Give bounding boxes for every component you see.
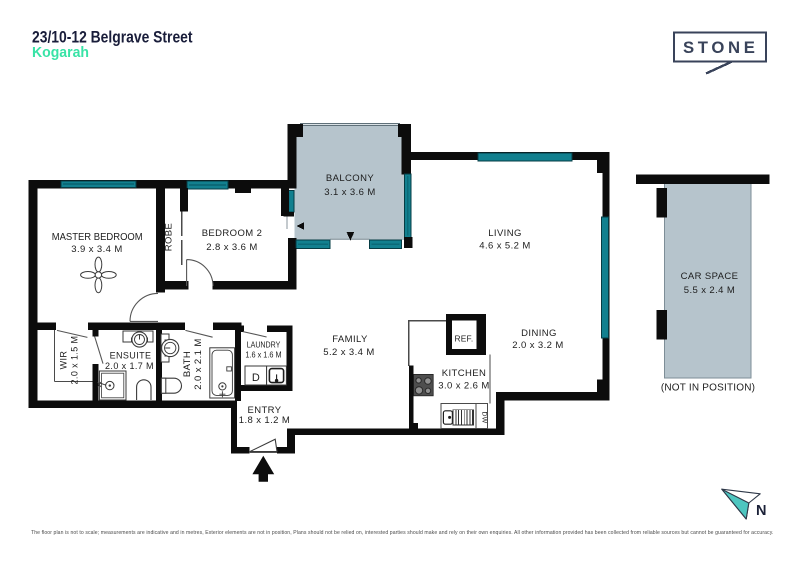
- svg-text:STONE: STONE: [683, 39, 759, 57]
- svg-text:4.6 x 5.2 M: 4.6 x 5.2 M: [479, 241, 530, 252]
- svg-text:1.6 x 1.6 M: 1.6 x 1.6 M: [245, 351, 281, 360]
- svg-text:WIR: WIR: [59, 351, 69, 370]
- svg-text:3.0 x 2.6 M: 3.0 x 2.6 M: [438, 381, 489, 392]
- svg-text:KITCHEN: KITCHEN: [442, 368, 487, 379]
- svg-text:LAUNDRY: LAUNDRY: [247, 341, 281, 350]
- svg-text:BATH: BATH: [182, 351, 193, 377]
- svg-text:BEDROOM 2: BEDROOM 2: [202, 228, 263, 239]
- svg-text:CAR SPACE: CAR SPACE: [681, 271, 739, 282]
- svg-text:5.2 x 3.4 M: 5.2 x 3.4 M: [323, 347, 374, 358]
- svg-text:3.9 x 3.4 M: 3.9 x 3.4 M: [71, 244, 122, 255]
- svg-text:5.5 x 2.4 M: 5.5 x 2.4 M: [684, 285, 735, 296]
- svg-text:N: N: [756, 503, 766, 519]
- svg-text:ROBE: ROBE: [164, 223, 175, 252]
- svg-text:DW: DW: [480, 412, 487, 424]
- svg-text:3.1 x 3.6 M: 3.1 x 3.6 M: [324, 187, 375, 198]
- svg-text:(NOT IN POSITION): (NOT IN POSITION): [661, 383, 755, 394]
- svg-text:The floor plan is not to scale: The floor plan is not to scale; measurem…: [31, 530, 774, 536]
- svg-text:2.0 x 1.5 M: 2.0 x 1.5 M: [70, 336, 80, 385]
- svg-text:2.0 x 3.2 M: 2.0 x 3.2 M: [512, 340, 563, 351]
- svg-text:MASTER BEDROOM: MASTER BEDROOM: [52, 232, 143, 243]
- svg-text:ENSUITE: ENSUITE: [110, 351, 152, 361]
- svg-text:Kogarah: Kogarah: [32, 45, 89, 61]
- svg-text:2.0 x 1.7 M: 2.0 x 1.7 M: [105, 361, 154, 371]
- svg-text:FAMILY: FAMILY: [332, 334, 368, 345]
- svg-text:1.8 x 1.2 M: 1.8 x 1.2 M: [239, 415, 290, 426]
- svg-text:23/10-12 Belgrave Street: 23/10-12 Belgrave Street: [32, 29, 193, 47]
- svg-text:2.0 x 2.1 M: 2.0 x 2.1 M: [193, 338, 204, 389]
- svg-text:REF.: REF.: [455, 334, 474, 344]
- svg-text:BALCONY: BALCONY: [326, 173, 374, 184]
- svg-text:DINING: DINING: [521, 328, 557, 339]
- svg-text:LIVING: LIVING: [488, 228, 522, 239]
- svg-text:D: D: [252, 372, 260, 384]
- svg-text:2.8 x 3.6 M: 2.8 x 3.6 M: [206, 242, 257, 253]
